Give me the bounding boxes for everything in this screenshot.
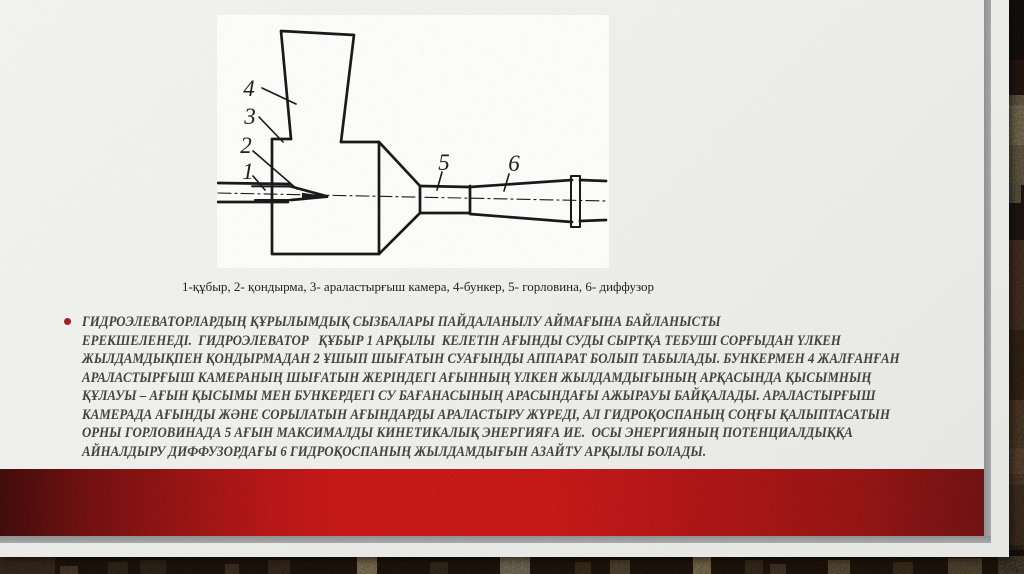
svg-text:5: 5 [438, 150, 450, 175]
svg-text:6: 6 [508, 151, 520, 176]
svg-text:4: 4 [243, 76, 255, 101]
svg-text:1: 1 [242, 159, 254, 184]
svg-text:3: 3 [243, 104, 256, 129]
svg-text:2: 2 [240, 133, 252, 158]
